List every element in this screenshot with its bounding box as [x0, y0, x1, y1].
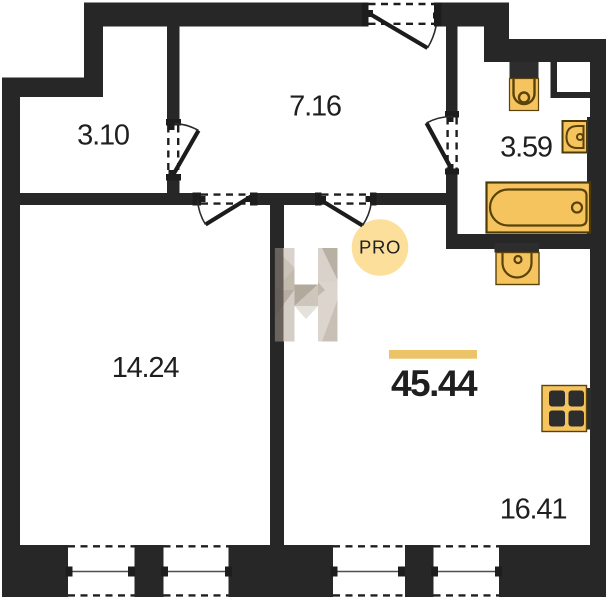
- svg-text:16.41: 16.41: [500, 494, 567, 526]
- svg-text:45.44: 45.44: [391, 363, 478, 404]
- svg-text:3.10: 3.10: [77, 120, 129, 152]
- svg-text:14.24: 14.24: [112, 352, 180, 384]
- svg-text:3.59: 3.59: [500, 132, 552, 164]
- svg-text:PRO: PRO: [359, 237, 401, 258]
- svg-text:7.16: 7.16: [289, 91, 341, 123]
